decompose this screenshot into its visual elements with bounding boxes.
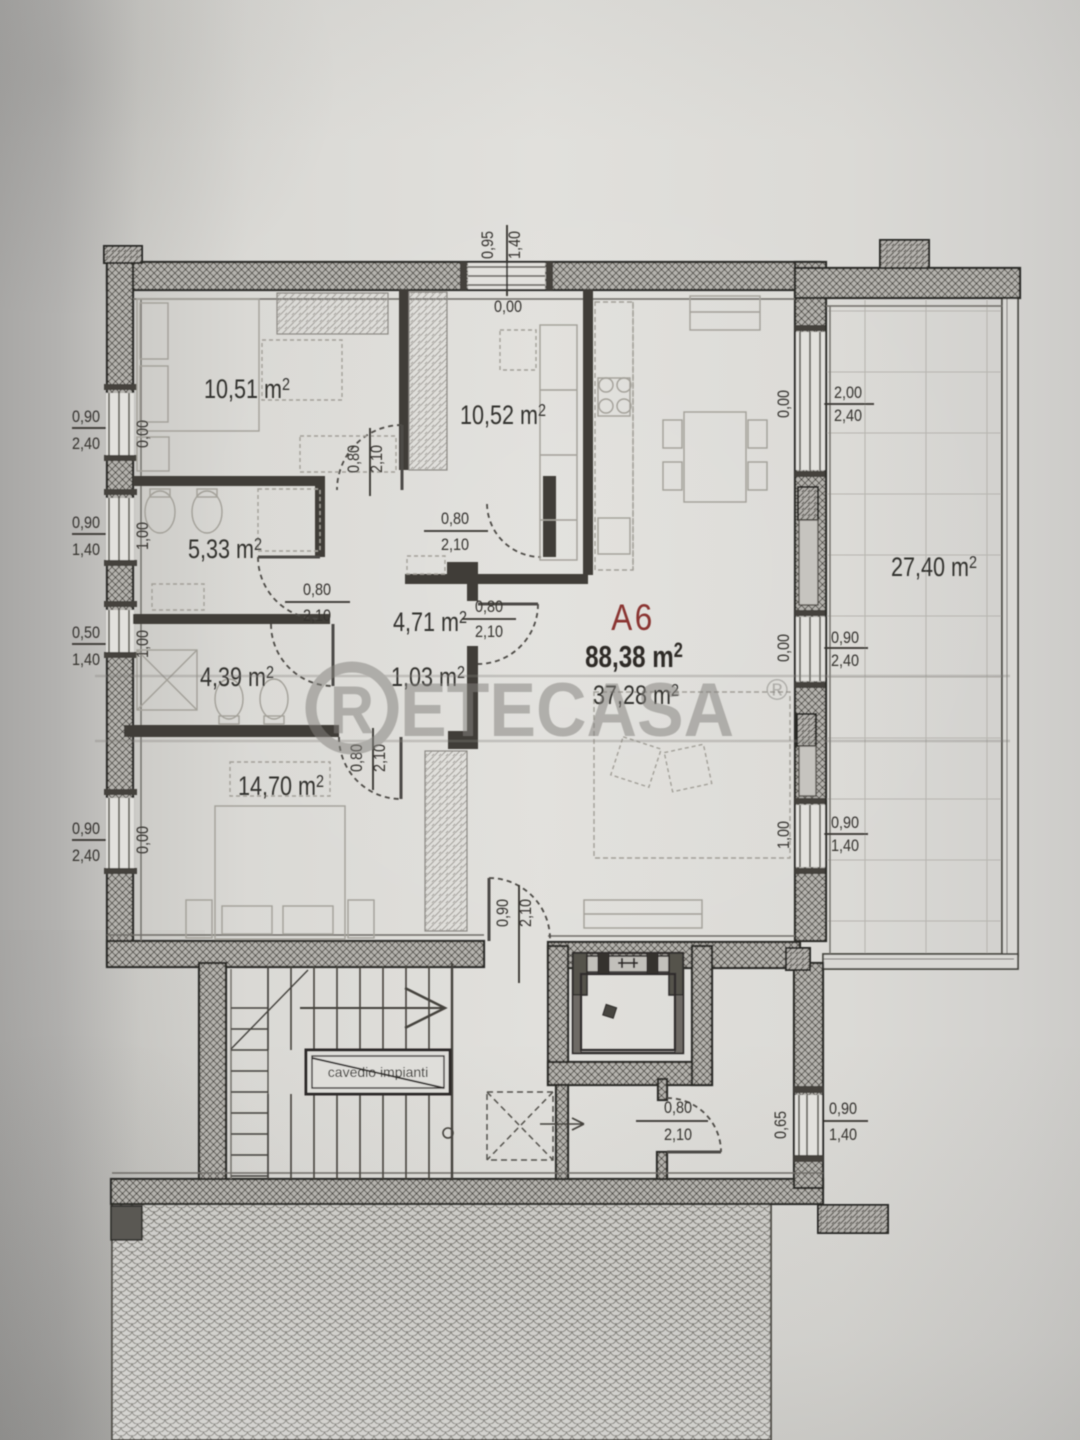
svg-text:1,00: 1,00 [775, 821, 793, 849]
svg-text:10,51 m2: 10,51 m2 [204, 375, 290, 405]
svg-text:1,40: 1,40 [506, 231, 524, 259]
svg-text:2,40: 2,40 [72, 435, 100, 453]
svg-text:0,00: 0,00 [775, 634, 793, 662]
svg-text:ETECASA: ETECASA [400, 668, 734, 752]
svg-text:cavedio impianti: cavedio impianti [328, 1064, 428, 1080]
svg-text:0,90: 0,90 [831, 814, 859, 832]
svg-text:1,40: 1,40 [72, 541, 100, 559]
svg-text:2,40: 2,40 [831, 652, 859, 670]
svg-text:0,80: 0,80 [303, 581, 331, 599]
svg-text:®: ® [766, 674, 788, 707]
svg-text:2,40: 2,40 [834, 407, 862, 425]
svg-text:1,40: 1,40 [72, 651, 100, 669]
svg-text:0,65: 0,65 [772, 1111, 790, 1139]
svg-text:2,10: 2,10 [664, 1126, 692, 1144]
svg-text:2,10: 2,10 [303, 607, 331, 625]
svg-text:27,40 m2: 27,40 m2 [891, 553, 977, 583]
svg-text:2,10: 2,10 [441, 536, 469, 554]
svg-text:4,39 m2: 4,39 m2 [200, 663, 274, 693]
svg-text:2,40: 2,40 [72, 847, 100, 865]
svg-text:0,90: 0,90 [831, 629, 859, 647]
svg-text:0,90: 0,90 [494, 899, 512, 927]
svg-text:4,71 m2: 4,71 m2 [393, 608, 467, 638]
svg-text:0,90: 0,90 [72, 820, 100, 838]
svg-text:0,80: 0,80 [664, 1099, 692, 1117]
svg-text:10,52 m2: 10,52 m2 [460, 401, 546, 431]
svg-text:0,90: 0,90 [72, 408, 100, 426]
svg-text:5,33 m2: 5,33 m2 [188, 535, 262, 565]
svg-text:1,40: 1,40 [829, 1126, 857, 1144]
svg-text:2,00: 2,00 [834, 384, 862, 402]
svg-text:14,70 m2: 14,70 m2 [238, 772, 324, 802]
svg-text:A6: A6 [611, 598, 655, 639]
svg-text:0,50: 0,50 [72, 624, 100, 642]
svg-text:0,00: 0,00 [775, 390, 793, 418]
svg-text:0,80: 0,80 [345, 445, 363, 473]
svg-text:0,00: 0,00 [134, 826, 152, 854]
svg-text:0,80: 0,80 [441, 510, 469, 528]
svg-text:0,95: 0,95 [479, 231, 497, 259]
svg-text:0,80: 0,80 [475, 598, 503, 616]
svg-text:2,10: 2,10 [475, 623, 503, 641]
svg-text:0,90: 0,90 [72, 514, 100, 532]
svg-text:0,90: 0,90 [829, 1100, 857, 1118]
svg-text:1,40: 1,40 [831, 837, 859, 855]
svg-text:0,00: 0,00 [134, 420, 152, 448]
svg-text:1,00: 1,00 [134, 630, 152, 658]
svg-text:1,00: 1,00 [134, 522, 152, 550]
svg-text:0,00: 0,00 [494, 298, 522, 316]
svg-text:R: R [330, 671, 374, 748]
